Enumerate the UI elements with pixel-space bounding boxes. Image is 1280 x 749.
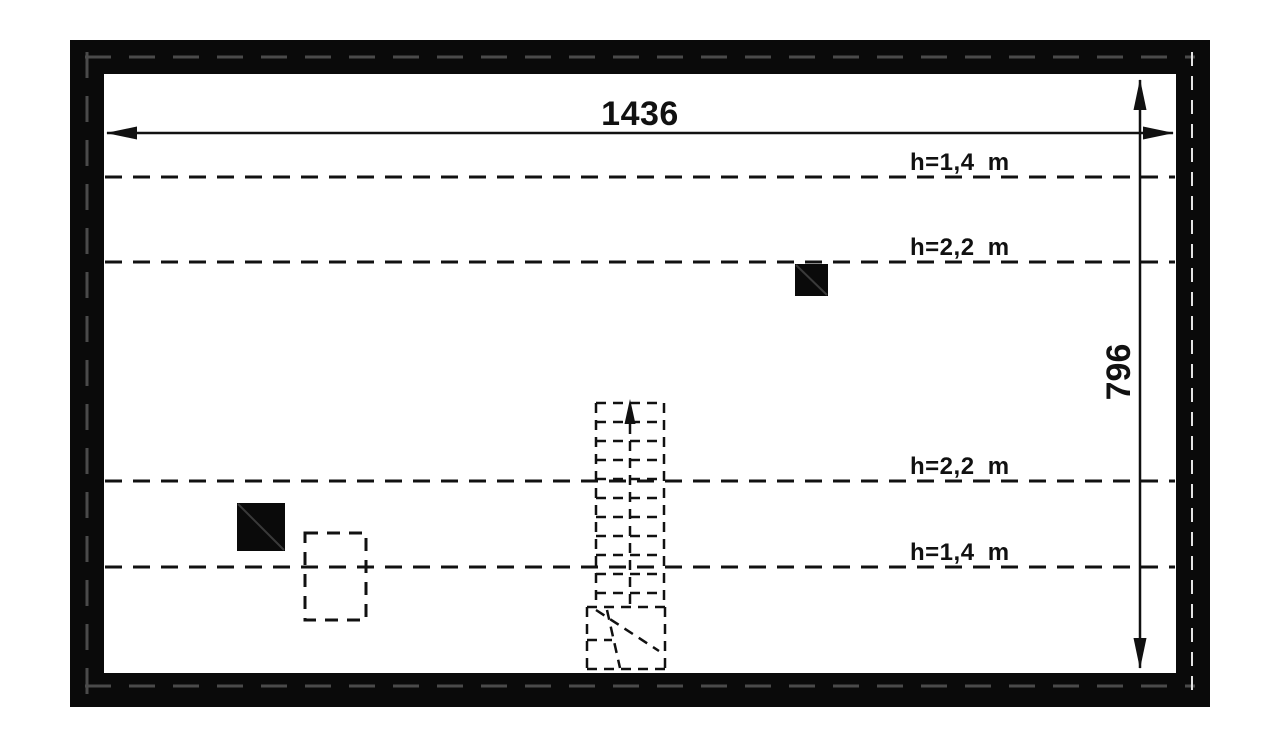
height-label-3: h=2,2 m <box>910 455 1050 479</box>
chimney-left <box>237 503 285 551</box>
wall-bottom <box>70 673 1210 707</box>
arrow-up-icon <box>1134 79 1147 110</box>
height-label-4: h=1,4 m <box>910 541 1050 565</box>
floor-plan: 1436 796 h=1,4 m h=2,2 m h=2,2 m h=1,4 m <box>0 0 1280 749</box>
arrow-right-icon <box>1143 127 1174 140</box>
height-label-1: h=1,4 m <box>910 151 1050 175</box>
arrow-left-icon <box>106 127 137 140</box>
staircase <box>587 399 665 669</box>
height-dimension-label: 796 <box>1102 322 1136 422</box>
width-dimension-label: 1436 <box>540 97 740 131</box>
stair-winder <box>587 607 665 669</box>
dashed-outline-rect <box>305 533 366 620</box>
height-label-2: h=2,2 m <box>910 236 1050 260</box>
arrow-down-icon <box>1134 638 1147 669</box>
winder-diagonal-1 <box>596 610 659 651</box>
chimney-right <box>795 264 828 296</box>
